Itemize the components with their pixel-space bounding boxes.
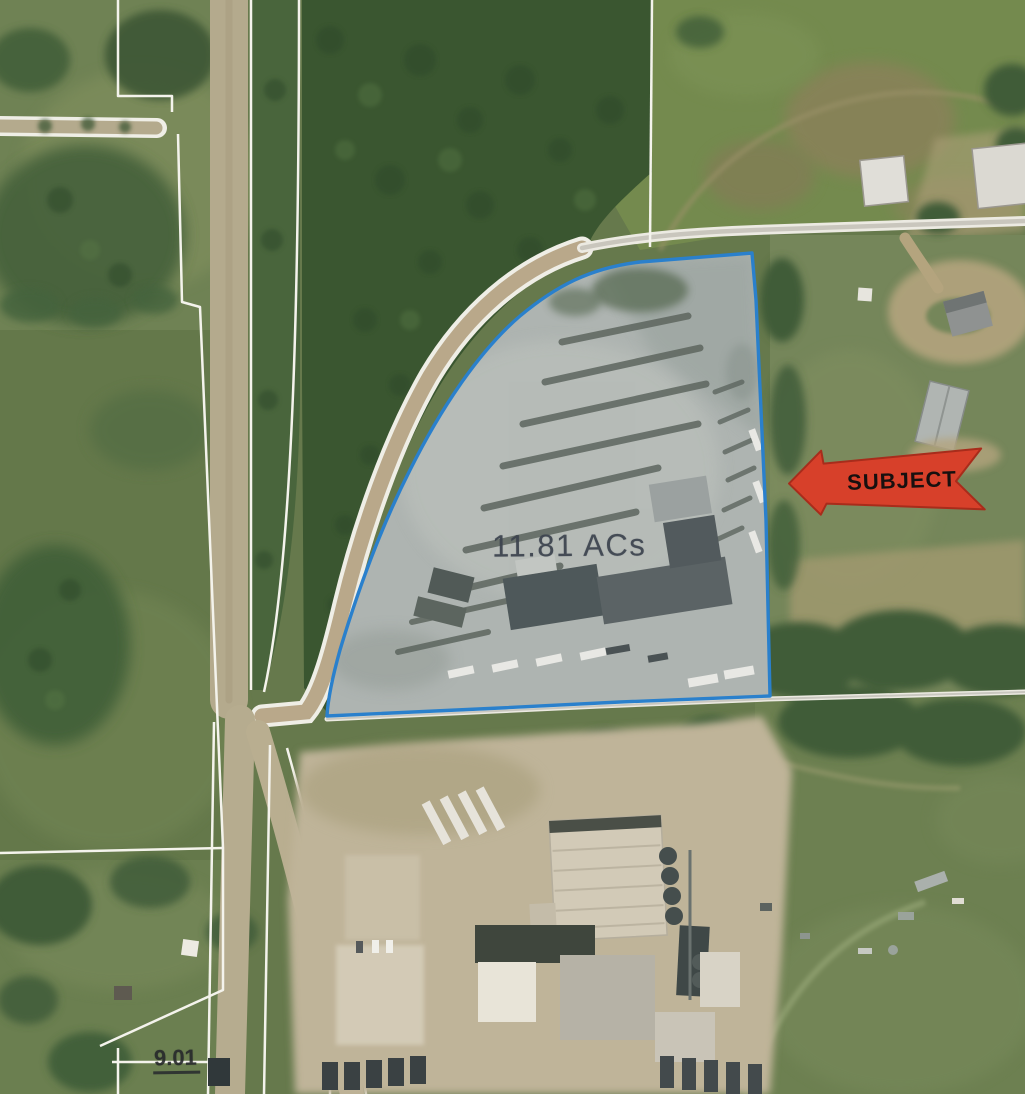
plant-building-small xyxy=(700,952,740,1007)
shed-roof xyxy=(858,288,873,302)
parcel-number-label: 9.01 xyxy=(153,1045,200,1075)
plant-building-white xyxy=(478,962,536,1022)
subject-callout-label: SUBJECT xyxy=(832,466,973,497)
house-roof-dark xyxy=(114,986,132,1000)
house-roof-small xyxy=(181,939,199,957)
outbuilding-roof xyxy=(860,156,909,206)
aerial-parcel-map: 11.81 ACs 9.01 SUBJECT xyxy=(0,0,1025,1094)
outbuilding-roof-2 xyxy=(972,143,1025,208)
highway-south-lane xyxy=(230,720,240,1094)
subject-area-label: 11.81 ACs xyxy=(492,527,647,564)
plant-building-gray xyxy=(560,955,655,1040)
cars xyxy=(356,940,393,953)
